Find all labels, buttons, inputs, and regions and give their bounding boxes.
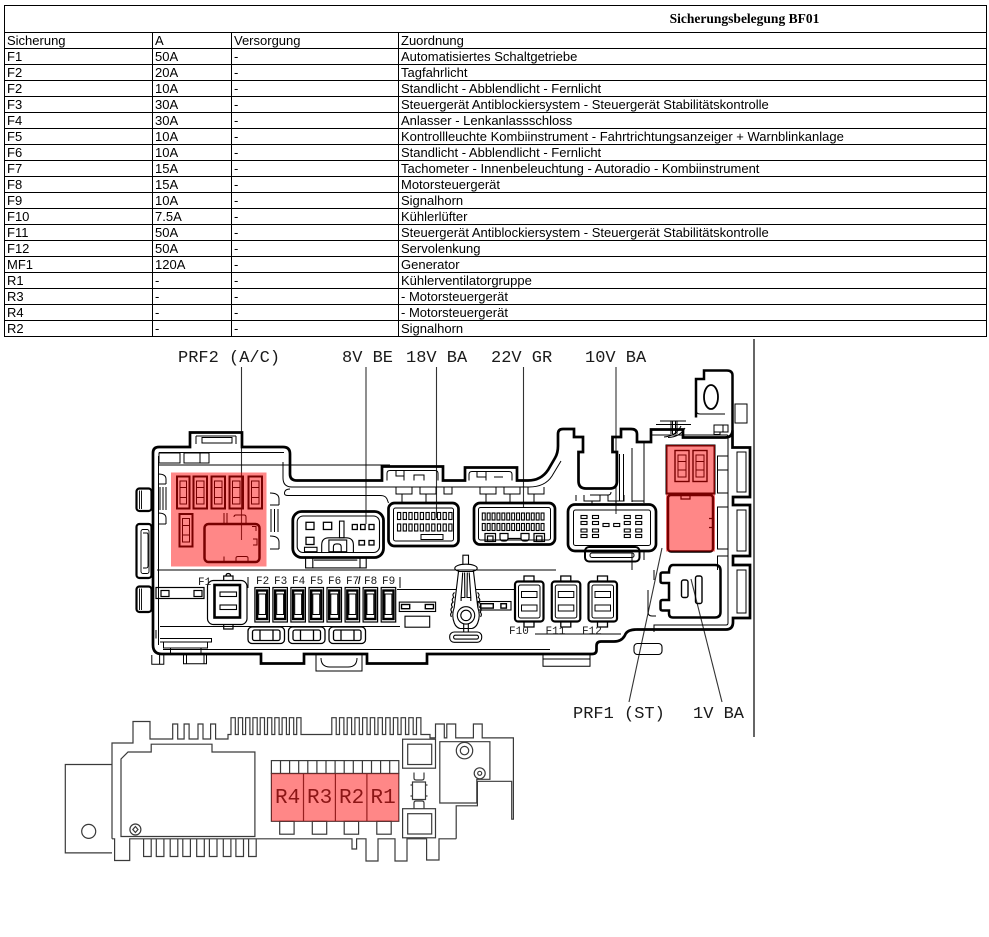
svg-text:PRF1 (ST): PRF1 (ST) <box>573 705 665 724</box>
svg-text:F12: F12 <box>582 626 602 638</box>
svg-text:R3: R3 <box>307 787 332 810</box>
svg-text:F10: F10 <box>509 626 529 638</box>
svg-text:F5: F5 <box>310 576 323 588</box>
svg-text:1V BA: 1V BA <box>693 705 745 724</box>
svg-text:F2: F2 <box>256 576 269 588</box>
svg-text:R4: R4 <box>275 787 300 810</box>
svg-text:F6: F6 <box>328 576 341 588</box>
svg-text:R2: R2 <box>339 787 364 810</box>
svg-text:F4: F4 <box>292 576 306 588</box>
svg-text:F11: F11 <box>546 626 566 638</box>
svg-text:10V BA: 10V BA <box>585 349 647 368</box>
svg-text:R1: R1 <box>371 787 396 810</box>
svg-text:PRF2 (A/C): PRF2 (A/C) <box>178 349 280 368</box>
svg-text:F3: F3 <box>274 576 287 588</box>
svg-text:22V GR: 22V GR <box>491 349 552 368</box>
svg-text:F1: F1 <box>198 577 212 589</box>
svg-text:F7: F7 <box>346 576 359 588</box>
svg-text:F8: F8 <box>364 576 377 588</box>
svg-text:8V BE: 8V BE <box>342 349 393 368</box>
svg-text:18V BA: 18V BA <box>406 349 468 368</box>
svg-text:F9: F9 <box>382 576 395 588</box>
